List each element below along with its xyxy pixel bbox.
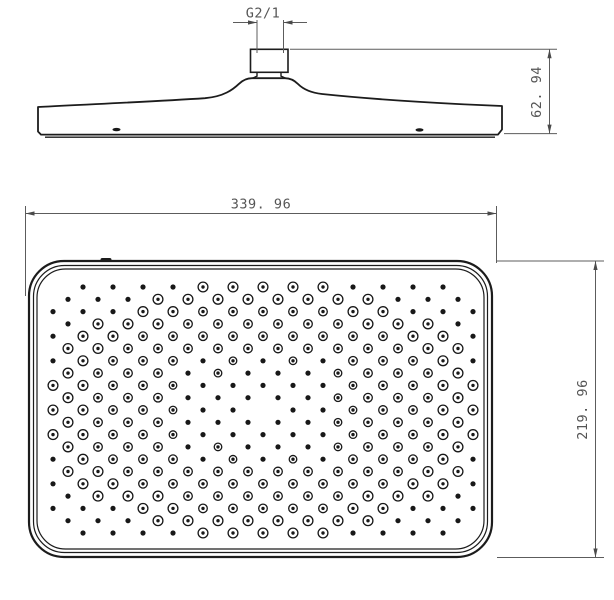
nozzle-ring-center bbox=[321, 531, 324, 534]
nozzle-ring-center bbox=[351, 433, 354, 436]
nozzle-ring-center bbox=[141, 310, 144, 313]
nozzle-dot bbox=[470, 358, 475, 363]
nozzle-ring-center bbox=[126, 445, 129, 448]
nozzle-ring-center bbox=[171, 482, 174, 485]
nozzle-dot bbox=[470, 481, 475, 486]
nozzle-ring-center bbox=[156, 519, 159, 522]
nozzle-ring-center bbox=[396, 371, 399, 374]
nozzle-ring-center bbox=[81, 482, 84, 485]
thread-dimension: G2/1 bbox=[233, 6, 307, 54]
nozzle-ring-center bbox=[366, 494, 369, 497]
nozzle-ring-center bbox=[231, 335, 234, 338]
nozzle-ring-center bbox=[471, 433, 474, 436]
arrowhead-icon bbox=[547, 49, 551, 58]
nozzle-ring-center bbox=[81, 408, 84, 411]
nozzle-ring-center bbox=[276, 322, 279, 325]
nozzle-dot bbox=[455, 518, 460, 523]
nozzle-ring-center bbox=[111, 384, 114, 387]
nozzle-ring-center bbox=[51, 384, 54, 387]
nozzle-dot bbox=[455, 297, 460, 302]
nozzle-ring-center bbox=[336, 396, 339, 399]
nozzle-dot bbox=[185, 371, 190, 376]
nozzle-ring-center bbox=[366, 396, 369, 399]
nozzle-dot bbox=[80, 530, 85, 535]
nozzle-ring-center bbox=[276, 347, 279, 350]
nozzle-ring-center bbox=[396, 421, 399, 424]
nozzle-ring-center bbox=[246, 470, 249, 473]
nozzle-ring-center bbox=[336, 347, 339, 350]
nozzle-dot bbox=[65, 321, 70, 326]
nozzle-ring-center bbox=[336, 445, 339, 448]
drawing-canvas: G2/1 62. 94 339. 96 219. 96 bbox=[0, 0, 614, 600]
nozzle-dot bbox=[200, 457, 205, 462]
nozzle-ring-center bbox=[141, 359, 144, 362]
nozzle-dot bbox=[440, 309, 445, 314]
nozzle-ring-center bbox=[261, 507, 264, 510]
nozzle-field bbox=[48, 282, 478, 538]
nozzle-ring-center bbox=[396, 347, 399, 350]
nozzle-dot bbox=[275, 420, 280, 425]
nozzle-ring-center bbox=[396, 396, 399, 399]
nozzle-ring-center bbox=[396, 322, 399, 325]
nozzle-ring-center bbox=[171, 335, 174, 338]
nozzle-ring-center bbox=[456, 396, 459, 399]
nozzle-dot bbox=[170, 530, 175, 535]
side-view-nozzle-dot bbox=[416, 128, 424, 131]
nozzle-dot bbox=[245, 444, 250, 449]
nozzle-dot bbox=[350, 530, 355, 535]
nozzle-ring-center bbox=[291, 531, 294, 534]
nozzle-ring-center bbox=[441, 408, 444, 411]
nozzle-ring-center bbox=[201, 507, 204, 510]
nozzle-ring-center bbox=[171, 408, 174, 411]
nozzle-ring-center bbox=[381, 482, 384, 485]
nozzle-ring-center bbox=[456, 421, 459, 424]
nozzle-dot bbox=[290, 407, 295, 412]
nozzle-dot bbox=[95, 518, 100, 523]
nozzle-ring-center bbox=[156, 421, 159, 424]
nozzle-ring-center bbox=[456, 470, 459, 473]
nozzle-ring-center bbox=[246, 298, 249, 301]
nozzle-ring-center bbox=[381, 335, 384, 338]
nozzle-ring-center bbox=[51, 408, 54, 411]
nozzle-dot bbox=[320, 432, 325, 437]
side-view-head-outline bbox=[38, 78, 502, 134]
nozzle-ring-center bbox=[366, 421, 369, 424]
nozzle-ring-center bbox=[201, 482, 204, 485]
nozzle-dot bbox=[260, 457, 265, 462]
nozzle-ring-center bbox=[216, 519, 219, 522]
nozzle-dot bbox=[260, 358, 265, 363]
nozzle-dot bbox=[380, 284, 385, 289]
nozzle-ring-center bbox=[66, 421, 69, 424]
nozzle-ring-center bbox=[66, 396, 69, 399]
nozzle-ring-center bbox=[186, 298, 189, 301]
nozzle-dot bbox=[320, 457, 325, 462]
nozzle-ring-center bbox=[381, 507, 384, 510]
nozzle-ring-center bbox=[201, 310, 204, 313]
nozzle-ring-center bbox=[426, 396, 429, 399]
nozzle-ring-center bbox=[441, 384, 444, 387]
nozzle-dot bbox=[350, 284, 355, 289]
nozzle-dot bbox=[200, 432, 205, 437]
nozzle-dot bbox=[305, 395, 310, 400]
nozzle-dot bbox=[395, 518, 400, 523]
nozzle-dot bbox=[110, 530, 115, 535]
nozzle-ring-center bbox=[126, 347, 129, 350]
nozzle-ring-center bbox=[186, 494, 189, 497]
nozzle-ring-center bbox=[381, 458, 384, 461]
nozzle-ring-center bbox=[156, 470, 159, 473]
nozzle-ring-center bbox=[216, 322, 219, 325]
nozzle-ring-center bbox=[396, 494, 399, 497]
nozzle-ring-center bbox=[111, 408, 114, 411]
nozzle-ring-center bbox=[96, 445, 99, 448]
nozzle-dot bbox=[95, 297, 100, 302]
nozzle-dot bbox=[320, 407, 325, 412]
nozzle-ring-center bbox=[396, 445, 399, 448]
nozzle-ring-center bbox=[141, 482, 144, 485]
face-height-label: 219. 96 bbox=[575, 379, 591, 439]
nozzle-ring-center bbox=[51, 433, 54, 436]
nozzle-dot bbox=[110, 309, 115, 314]
nozzle-ring-center bbox=[351, 384, 354, 387]
nozzle-ring-center bbox=[81, 335, 84, 338]
nozzle-ring-center bbox=[126, 396, 129, 399]
nozzle-ring-center bbox=[216, 494, 219, 497]
nozzle-ring-center bbox=[141, 433, 144, 436]
nozzle-ring-center bbox=[96, 494, 99, 497]
nozzle-ring-center bbox=[321, 335, 324, 338]
nozzle-ring-center bbox=[366, 470, 369, 473]
nozzle-ring-center bbox=[156, 347, 159, 350]
nozzle-dot bbox=[260, 432, 265, 437]
nozzle-dot bbox=[185, 420, 190, 425]
nozzle-dot bbox=[275, 371, 280, 376]
nozzle-ring-center bbox=[396, 470, 399, 473]
nozzle-dot bbox=[245, 395, 250, 400]
nozzle-ring-center bbox=[351, 482, 354, 485]
nozzle-ring-center bbox=[156, 494, 159, 497]
connector-nut bbox=[251, 49, 289, 72]
nozzle-ring-center bbox=[306, 298, 309, 301]
nozzle-ring-center bbox=[291, 482, 294, 485]
nozzle-ring-center bbox=[426, 371, 429, 374]
nozzle-ring-center bbox=[216, 445, 219, 448]
nozzle-dot bbox=[80, 506, 85, 511]
nozzle-ring-center bbox=[366, 298, 369, 301]
nozzle-ring-center bbox=[336, 371, 339, 374]
nozzle-ring-center bbox=[231, 285, 234, 288]
nozzle-dot bbox=[230, 407, 235, 412]
nozzle-dot bbox=[440, 284, 445, 289]
nozzle-ring-center bbox=[201, 285, 204, 288]
nozzle-dot bbox=[215, 395, 220, 400]
nozzle-dot bbox=[305, 444, 310, 449]
nozzle-dot bbox=[230, 383, 235, 388]
nozzle-ring-center bbox=[306, 494, 309, 497]
nozzle-ring-center bbox=[231, 458, 234, 461]
nozzle-ring-center bbox=[186, 519, 189, 522]
nozzle-ring-center bbox=[456, 347, 459, 350]
nozzle-dot bbox=[80, 284, 85, 289]
nozzle-dot bbox=[410, 284, 415, 289]
nozzle-ring-center bbox=[111, 433, 114, 436]
nozzle-dot bbox=[470, 334, 475, 339]
thread-size-label: G2/1 bbox=[246, 6, 281, 22]
nozzle-ring-center bbox=[81, 359, 84, 362]
nozzle-ring-center bbox=[411, 458, 414, 461]
nozzle-ring-center bbox=[141, 458, 144, 461]
nozzle-dot bbox=[170, 284, 175, 289]
side-view bbox=[38, 49, 502, 137]
arrowhead-icon bbox=[593, 549, 597, 558]
nozzle-dot bbox=[230, 432, 235, 437]
nozzle-ring-center bbox=[366, 347, 369, 350]
nozzle-ring-center bbox=[111, 458, 114, 461]
nozzle-dot bbox=[290, 432, 295, 437]
nozzle-ring-center bbox=[306, 519, 309, 522]
nozzle-ring-center bbox=[96, 470, 99, 473]
nozzle-ring-center bbox=[66, 371, 69, 374]
nozzle-ring-center bbox=[276, 470, 279, 473]
nozzle-ring-center bbox=[351, 310, 354, 313]
nozzle-dot bbox=[200, 358, 205, 363]
nozzle-ring-center bbox=[186, 322, 189, 325]
nozzle-ring-center bbox=[471, 408, 474, 411]
nozzle-ring-center bbox=[351, 359, 354, 362]
nozzle-ring-center bbox=[261, 482, 264, 485]
nozzle-ring-center bbox=[261, 335, 264, 338]
nozzle-ring-center bbox=[441, 359, 444, 362]
nozzle-ring-center bbox=[441, 482, 444, 485]
nozzle-ring-center bbox=[141, 408, 144, 411]
nozzle-dot bbox=[410, 309, 415, 314]
nozzle-ring-center bbox=[126, 470, 129, 473]
nozzle-ring-center bbox=[171, 384, 174, 387]
nozzle-ring-center bbox=[381, 359, 384, 362]
nozzle-dot bbox=[80, 309, 85, 314]
nozzle-dot bbox=[455, 321, 460, 326]
nozzle-ring-center bbox=[171, 507, 174, 510]
nozzle-ring-center bbox=[156, 445, 159, 448]
nozzle-ring-center bbox=[96, 322, 99, 325]
nozzle-ring-center bbox=[426, 470, 429, 473]
nozzle-ring-center bbox=[381, 384, 384, 387]
nozzle-ring-center bbox=[426, 494, 429, 497]
nozzle-ring-center bbox=[411, 335, 414, 338]
nozzle-ring-center bbox=[441, 433, 444, 436]
nozzle-ring-center bbox=[66, 470, 69, 473]
nozzle-dot bbox=[410, 506, 415, 511]
face-top-tab bbox=[101, 258, 112, 262]
nozzle-ring-center bbox=[366, 445, 369, 448]
technical-drawing: G2/1 62. 94 339. 96 219. 96 bbox=[0, 0, 614, 600]
arrowhead-icon bbox=[26, 211, 35, 215]
nozzle-ring-center bbox=[156, 298, 159, 301]
side-view-nozzle-dot bbox=[113, 128, 121, 131]
nozzle-ring-center bbox=[366, 519, 369, 522]
nozzle-dot bbox=[425, 518, 430, 523]
nozzle-ring-center bbox=[456, 371, 459, 374]
nozzle-ring-center bbox=[81, 384, 84, 387]
arrowhead-icon bbox=[488, 211, 497, 215]
face-height-dimension: 219. 96 bbox=[497, 261, 604, 558]
nozzle-ring-center bbox=[231, 482, 234, 485]
nozzle-ring-center bbox=[171, 310, 174, 313]
arrowhead-icon bbox=[547, 125, 551, 134]
face-width-label: 339. 96 bbox=[231, 197, 291, 213]
nozzle-ring-center bbox=[261, 310, 264, 313]
nozzle-ring-center bbox=[411, 359, 414, 362]
nozzle-ring-center bbox=[276, 494, 279, 497]
nozzle-ring-center bbox=[246, 494, 249, 497]
nozzle-ring-center bbox=[171, 433, 174, 436]
nozzle-ring-center bbox=[141, 335, 144, 338]
nozzle-ring-center bbox=[171, 458, 174, 461]
side-height-label: 62. 94 bbox=[529, 66, 545, 118]
nozzle-ring-center bbox=[351, 507, 354, 510]
nozzle-ring-center bbox=[246, 347, 249, 350]
nozzle-ring-center bbox=[366, 371, 369, 374]
nozzle-ring-center bbox=[321, 285, 324, 288]
nozzle-dot bbox=[140, 284, 145, 289]
nozzle-ring-center bbox=[336, 494, 339, 497]
nozzle-ring-center bbox=[111, 359, 114, 362]
arrowhead-icon bbox=[284, 20, 293, 24]
nozzle-ring-center bbox=[336, 470, 339, 473]
nozzle-ring-center bbox=[411, 384, 414, 387]
nozzle-ring-center bbox=[171, 359, 174, 362]
nozzle-dot bbox=[470, 506, 475, 511]
nozzle-ring-center bbox=[381, 433, 384, 436]
nozzle-ring-center bbox=[126, 494, 129, 497]
nozzle-dot bbox=[110, 284, 115, 289]
nozzle-ring-center bbox=[231, 310, 234, 313]
nozzle-dot bbox=[305, 420, 310, 425]
nozzle-dot bbox=[200, 407, 205, 412]
nozzle-ring-center bbox=[306, 322, 309, 325]
nozzle-dot bbox=[50, 506, 55, 511]
nozzle-ring-center bbox=[216, 371, 219, 374]
nozzle-ring-center bbox=[411, 482, 414, 485]
nozzle-ring-center bbox=[111, 335, 114, 338]
nozzle-dot bbox=[440, 530, 445, 535]
face-view bbox=[29, 258, 492, 557]
nozzle-dot bbox=[65, 518, 70, 523]
nozzle-ring-center bbox=[156, 371, 159, 374]
nozzle-dot bbox=[110, 506, 115, 511]
nozzle-dot bbox=[275, 395, 280, 400]
nozzle-ring-center bbox=[186, 347, 189, 350]
nozzle-ring-center bbox=[96, 347, 99, 350]
side-height-dimension: 62. 94 bbox=[290, 49, 557, 133]
nozzle-dot bbox=[320, 358, 325, 363]
nozzle-dot bbox=[245, 371, 250, 376]
nozzle-ring-center bbox=[336, 421, 339, 424]
nozzle-ring-center bbox=[291, 335, 294, 338]
nozzle-dot bbox=[290, 383, 295, 388]
nozzle-ring-center bbox=[321, 507, 324, 510]
nozzle-dot bbox=[260, 383, 265, 388]
nozzle-ring-center bbox=[426, 347, 429, 350]
nozzle-ring-center bbox=[261, 285, 264, 288]
nozzle-dot bbox=[50, 309, 55, 314]
nozzle-ring-center bbox=[231, 507, 234, 510]
nozzle-dot bbox=[410, 530, 415, 535]
nozzle-ring-center bbox=[276, 519, 279, 522]
nozzle-ring-center bbox=[306, 470, 309, 473]
nozzle-ring-center bbox=[216, 470, 219, 473]
nozzle-dot bbox=[470, 457, 475, 462]
nozzle-dot bbox=[215, 420, 220, 425]
nozzle-ring-center bbox=[441, 335, 444, 338]
nozzle-ring-center bbox=[246, 519, 249, 522]
nozzle-ring-center bbox=[291, 458, 294, 461]
nozzle-dot bbox=[50, 334, 55, 339]
nozzle-ring-center bbox=[126, 421, 129, 424]
nozzle-ring-center bbox=[411, 433, 414, 436]
nozzle-dot bbox=[455, 494, 460, 499]
nozzle-ring-center bbox=[261, 531, 264, 534]
nozzle-ring-center bbox=[426, 421, 429, 424]
nozzle-ring-center bbox=[381, 408, 384, 411]
arrowhead-icon bbox=[593, 261, 597, 270]
nozzle-ring-center bbox=[366, 322, 369, 325]
face-width-dimension: 339. 96 bbox=[26, 197, 497, 297]
nozzle-ring-center bbox=[231, 359, 234, 362]
nozzle-ring-center bbox=[456, 445, 459, 448]
nozzle-dot bbox=[140, 530, 145, 535]
nozzle-ring-center bbox=[336, 322, 339, 325]
nozzle-dot bbox=[320, 383, 325, 388]
nozzle-dot bbox=[245, 420, 250, 425]
nozzle-ring-center bbox=[291, 359, 294, 362]
nozzle-dot bbox=[275, 444, 280, 449]
nozzle-ring-center bbox=[81, 433, 84, 436]
nozzle-ring-center bbox=[126, 371, 129, 374]
nozzle-ring-center bbox=[381, 310, 384, 313]
nozzle-dot bbox=[185, 444, 190, 449]
nozzle-ring-center bbox=[291, 507, 294, 510]
nozzle-dot bbox=[65, 297, 70, 302]
nozzle-dot bbox=[50, 358, 55, 363]
nozzle-ring-center bbox=[291, 310, 294, 313]
nozzle-ring-center bbox=[201, 335, 204, 338]
nozzle-ring-center bbox=[351, 458, 354, 461]
nozzle-ring-center bbox=[336, 519, 339, 522]
nozzle-ring-center bbox=[186, 470, 189, 473]
nozzle-ring-center bbox=[321, 482, 324, 485]
nozzle-ring-center bbox=[141, 507, 144, 510]
nozzle-ring-center bbox=[66, 445, 69, 448]
nozzle-ring-center bbox=[111, 482, 114, 485]
nozzle-ring-center bbox=[141, 384, 144, 387]
nozzle-dot bbox=[50, 457, 55, 462]
nozzle-ring-center bbox=[411, 408, 414, 411]
nozzle-ring-center bbox=[96, 396, 99, 399]
nozzle-dot bbox=[395, 297, 400, 302]
nozzle-ring-center bbox=[156, 396, 159, 399]
nozzle-ring-center bbox=[321, 310, 324, 313]
nozzle-ring-center bbox=[231, 531, 234, 534]
nozzle-ring-center bbox=[156, 322, 159, 325]
nozzle-dot bbox=[305, 371, 310, 376]
nozzle-ring-center bbox=[426, 445, 429, 448]
nozzle-ring-center bbox=[306, 347, 309, 350]
nozzle-dot bbox=[425, 297, 430, 302]
nozzle-ring-center bbox=[126, 322, 129, 325]
